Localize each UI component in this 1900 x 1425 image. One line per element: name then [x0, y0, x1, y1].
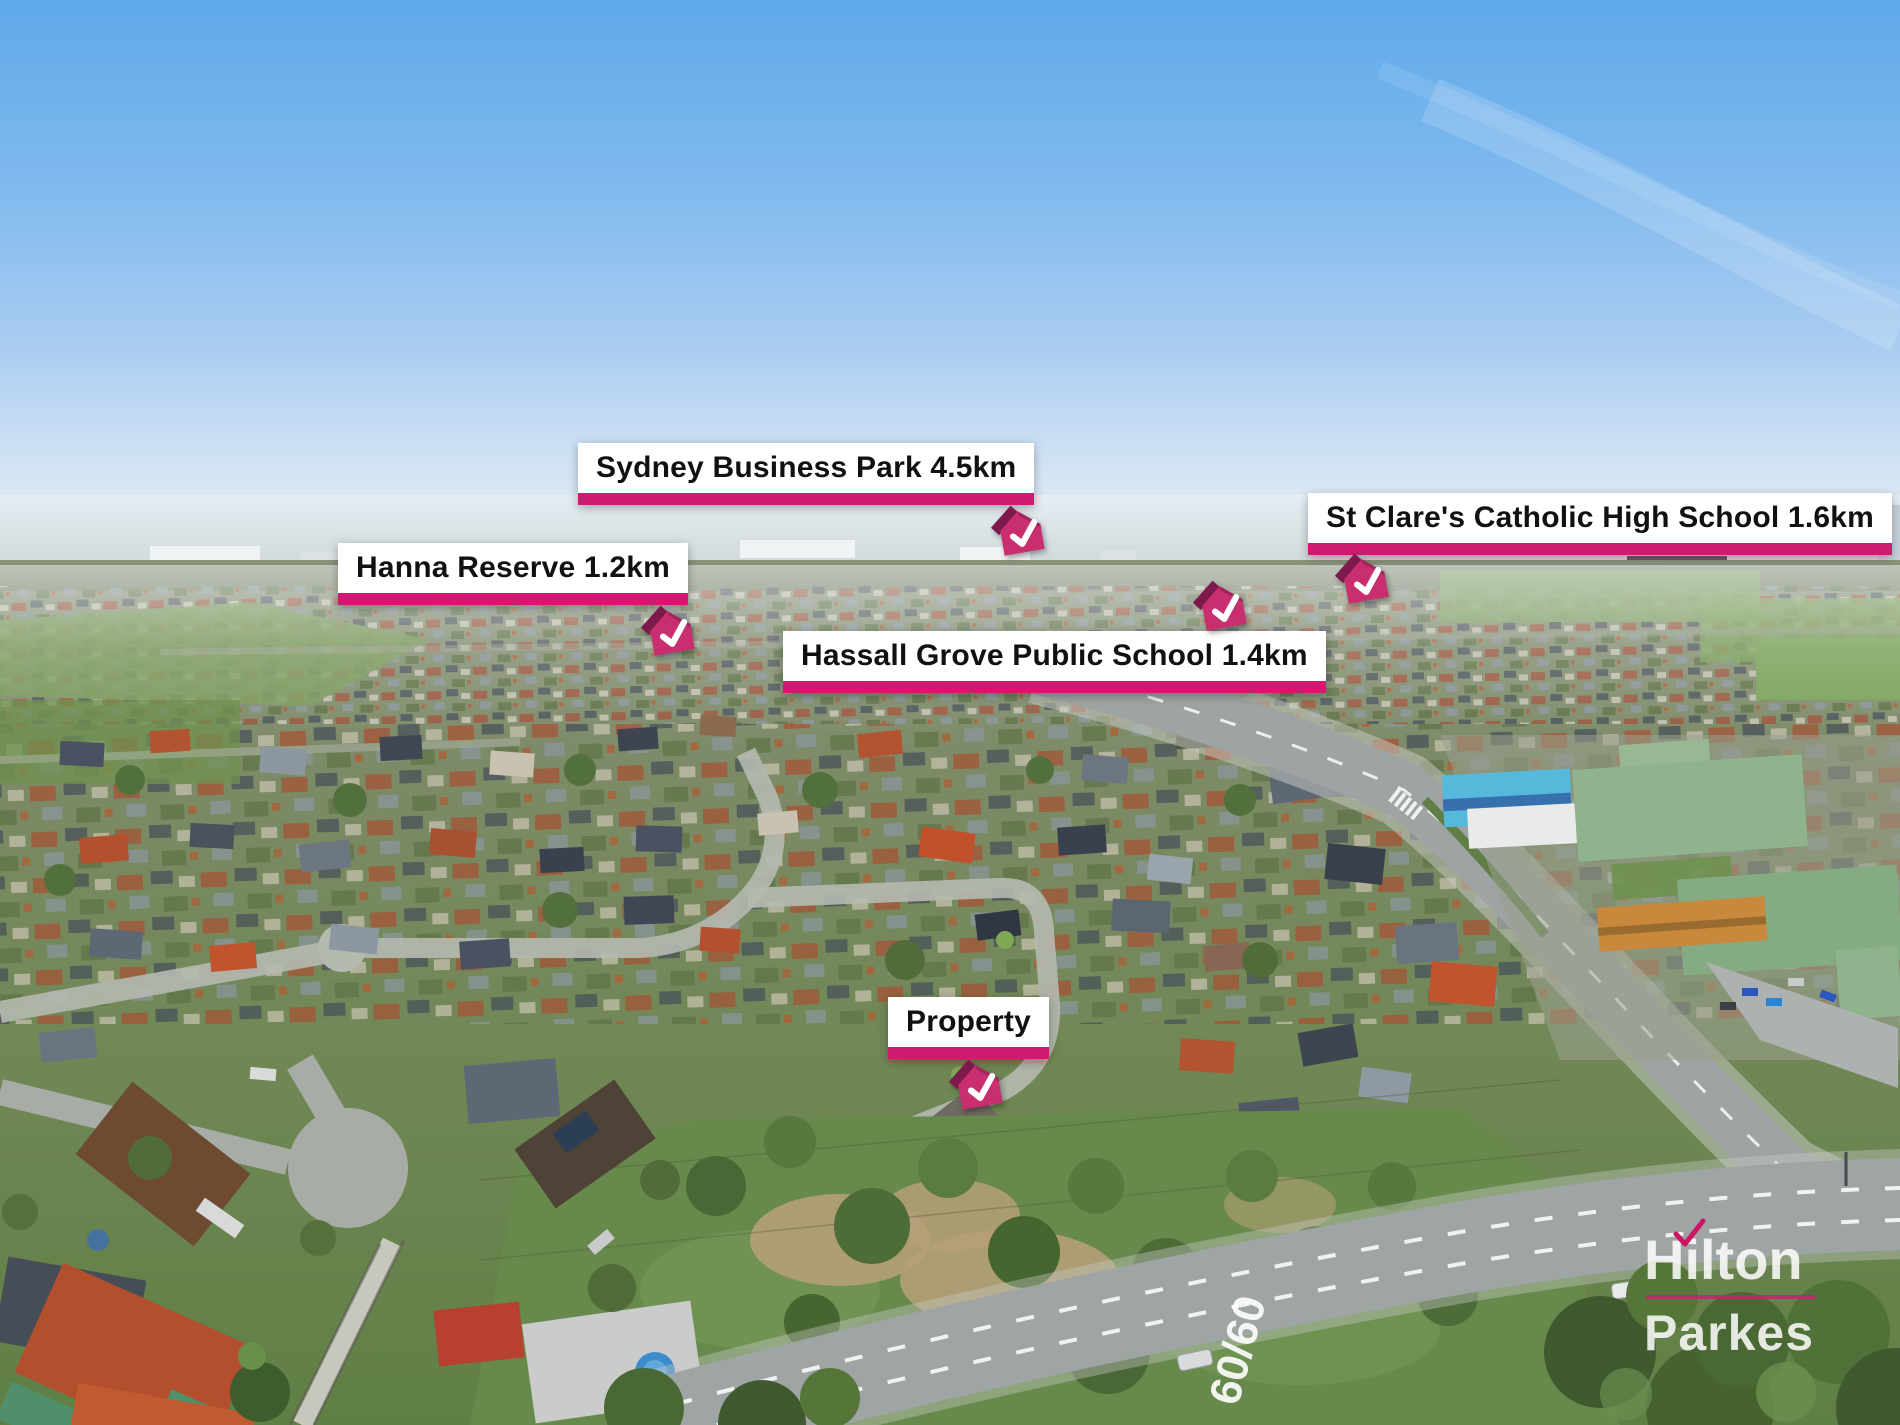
annotated-aerial-photo: 60/60 Sydney Business Park 4.5km St Clar… — [0, 0, 1900, 1425]
watermark-underline — [1646, 1295, 1816, 1299]
house-checkmark-icon-hassall — [1190, 577, 1248, 635]
label-accent-bar — [1308, 543, 1892, 555]
label-st-clares-high-school: St Clare's Catholic High School 1.6km — [1308, 493, 1892, 555]
label-hanna-reserve: Hanna Reserve 1.2km — [338, 543, 688, 605]
label-text: Hanna Reserve 1.2km — [338, 543, 688, 593]
house-checkmark-icon-st-clares — [1332, 550, 1390, 608]
checkmark-icon — [1672, 1218, 1706, 1248]
label-accent-bar — [338, 593, 688, 605]
label-text: St Clare's Catholic High School 1.6km — [1308, 493, 1892, 543]
label-text: Sydney Business Park 4.5km — [578, 443, 1034, 493]
label-accent-bar — [578, 493, 1034, 505]
hilton-parkes-watermark: Hilton Parkes — [1644, 1232, 1844, 1358]
watermark-line1: Hilton — [1644, 1232, 1844, 1288]
house-checkmark-icon-hanna — [638, 602, 696, 660]
label-sydney-business-park: Sydney Business Park 4.5km — [578, 443, 1034, 505]
watermark-line2: Parkes — [1644, 1308, 1844, 1358]
label-hassall-grove-school: Hassall Grove Public School 1.4km — [783, 631, 1326, 693]
label-text: Property — [888, 997, 1049, 1047]
label-text: Hassall Grove Public School 1.4km — [783, 631, 1326, 681]
house-checkmark-icon-sydney — [988, 502, 1046, 560]
label-accent-bar — [783, 681, 1326, 693]
house-checkmark-icon-property — [946, 1056, 1004, 1114]
aerial-photo-background: 60/60 — [0, 0, 1900, 1425]
label-property: Property — [888, 997, 1049, 1059]
